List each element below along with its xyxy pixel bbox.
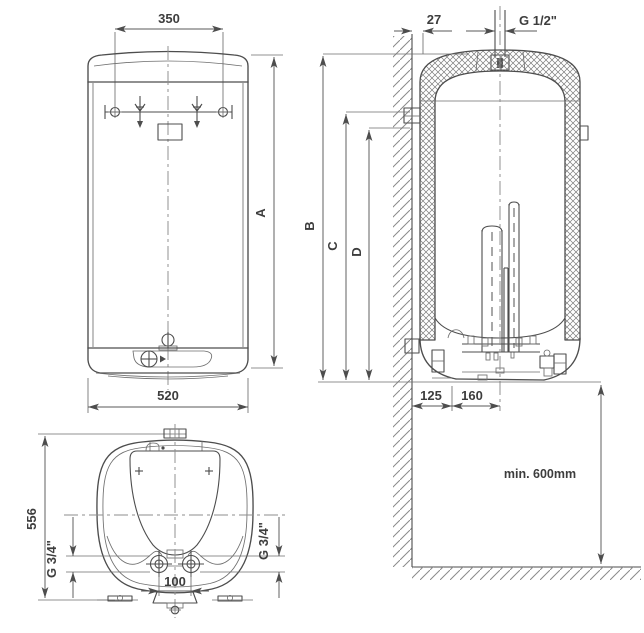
control-knob [141, 351, 166, 367]
section-dim-125-label: 125 [420, 388, 442, 403]
bottom-dim-right-connection: G 3/4" [200, 517, 285, 598]
front-dim-top-width-label: 350 [158, 11, 180, 26]
section-dim-total-height: B [302, 54, 468, 380]
front-mounting-bracket [105, 96, 232, 140]
junction-box [158, 124, 182, 140]
section-top-connection-label: G 1/2" [519, 13, 557, 28]
bottom-dim-depth-label: 556 [24, 508, 39, 530]
section-dim-b-label: B [302, 221, 317, 230]
dimensional-drawing-page: 350 [0, 0, 644, 633]
clearance-zone: min. 600mm [504, 385, 601, 564]
section-dim-bottom-offsets: 125 160 [412, 386, 500, 411]
section-dim-d-label: D [349, 247, 364, 256]
section-dim-wall-gap-label: 27 [427, 12, 441, 27]
bottom-left-connection-label: G 3/4" [44, 540, 59, 578]
safety-valve-assembly [540, 350, 566, 376]
bottom-right-connection-label: G 3/4" [256, 522, 271, 560]
front-dim-height-label: A [253, 208, 268, 218]
bottom-view: 556 [24, 424, 286, 618]
heating-element-tube [482, 226, 502, 360]
front-dim-top-width: 350 [115, 11, 223, 106]
casing-side-tab [580, 126, 588, 140]
clearance-label: min. 600mm [504, 467, 576, 481]
section-view: 27 G 1/2" [302, 6, 641, 580]
anchor-hole-left [108, 106, 122, 118]
screw-mark-right [205, 467, 213, 475]
anchor-hole-right [216, 106, 230, 118]
bottom-dim-pipe-spacing-label: 100 [164, 574, 186, 589]
front-view: 350 [88, 11, 283, 413]
sensor-tube [509, 202, 519, 358]
bottom-dim-left-connection: G 3/4" [44, 517, 150, 598]
flange-assembly [462, 336, 540, 380]
front-dim-bottom-width-label: 520 [157, 388, 179, 403]
section-dim-160-label: 160 [461, 388, 483, 403]
front-dim-height: A [251, 55, 283, 368]
screw-mark-left [135, 467, 143, 475]
water-heater-dimension-drawing: 350 [0, 0, 644, 633]
section-dim-c-label: C [325, 241, 340, 251]
knob-pointer-icon [160, 356, 166, 363]
anode-tube [504, 268, 508, 352]
